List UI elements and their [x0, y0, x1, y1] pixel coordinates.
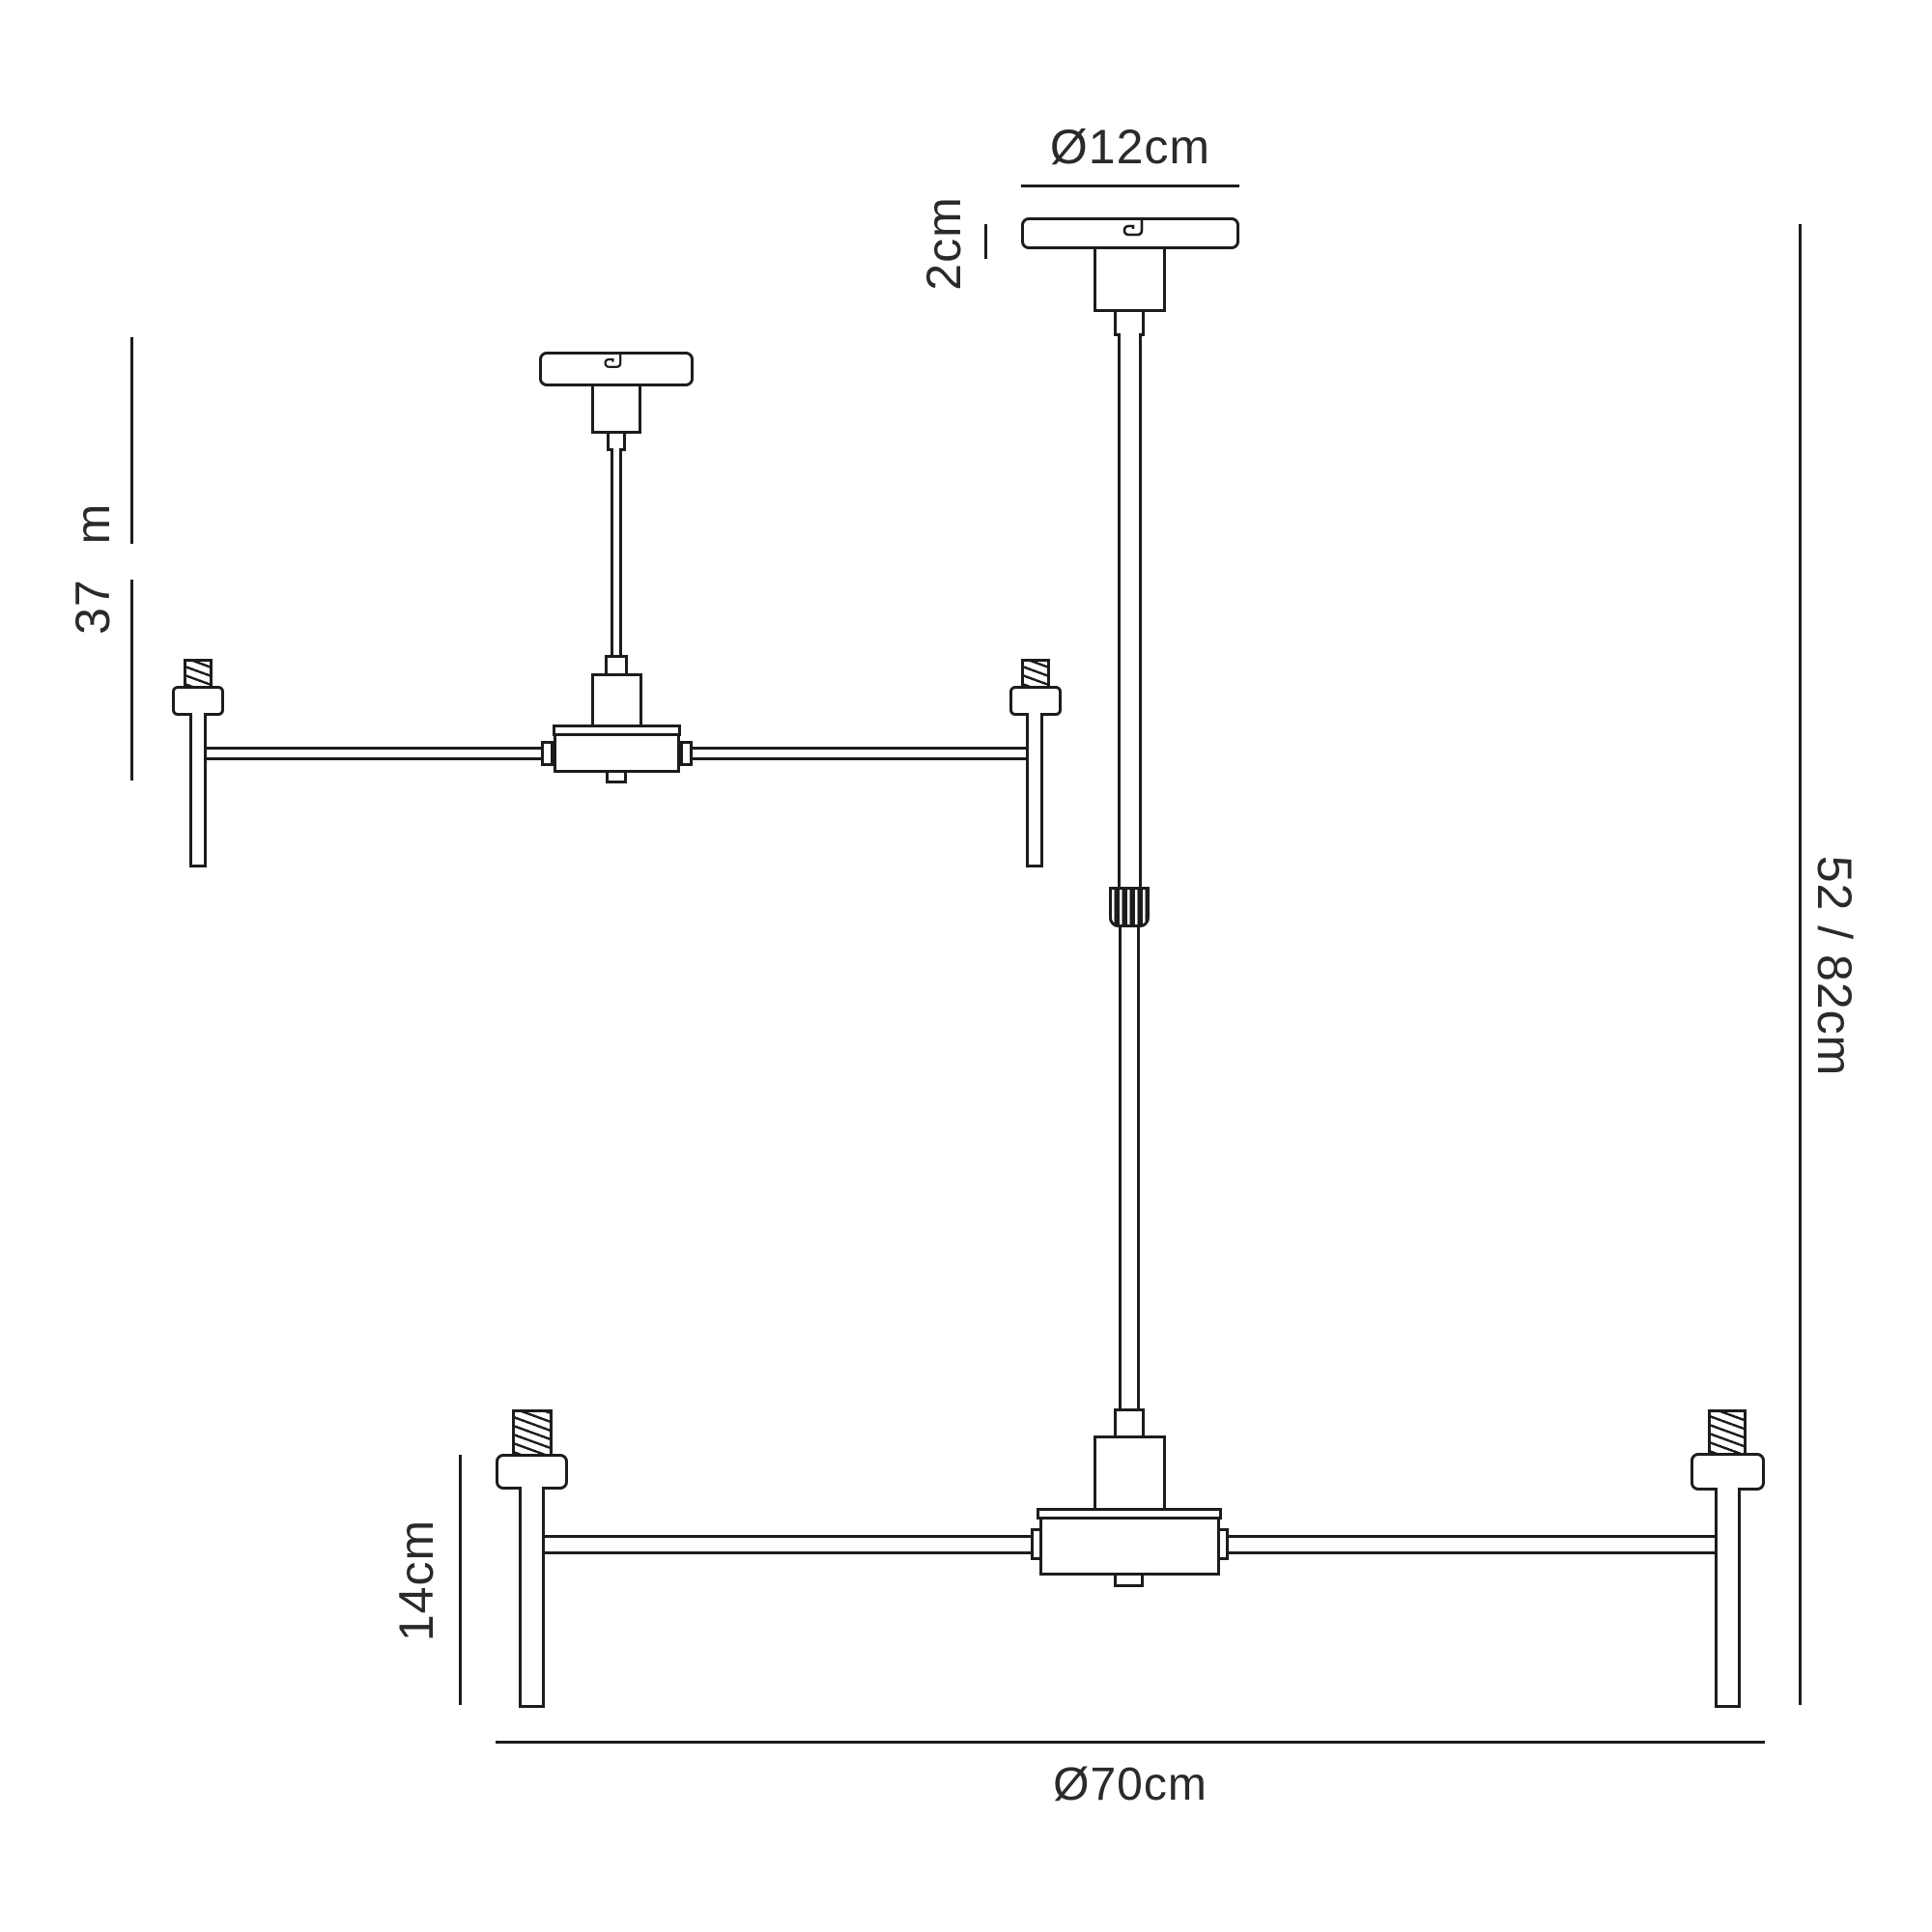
stem-connector — [1114, 309, 1145, 336]
center-hub — [1039, 1517, 1220, 1576]
arm-collar — [541, 741, 554, 766]
dim-line-semi-flush-height — [130, 580, 133, 781]
hub-finial — [606, 770, 627, 783]
canopy-socket — [591, 384, 641, 434]
lamp-holder-thread — [1708, 1409, 1747, 1456]
lamp-holder-thread — [184, 659, 213, 689]
hub-finial — [1114, 1573, 1144, 1587]
dim-label-canopy-height: 2cm — [919, 176, 969, 311]
stem-connector — [1114, 1408, 1145, 1438]
canopy-socket — [1094, 246, 1166, 312]
ceiling-hook-icon — [1122, 219, 1151, 241]
center-hub — [554, 733, 680, 773]
dim-label-pendant-height: 52 / 82cm — [1809, 821, 1860, 1111]
arm-collar — [680, 741, 693, 766]
dim-line-pendant-height — [1799, 224, 1802, 1705]
candle-cup — [1009, 686, 1062, 716]
dim-label-semi-flush-height-unit: m — [68, 495, 118, 553]
dim-line-fixture-diameter — [496, 1741, 1765, 1744]
lamp-holder-thread — [1021, 659, 1050, 689]
stem-rod — [1118, 333, 1142, 890]
candle-sleeve — [1715, 1488, 1741, 1708]
knurled-height-adjuster — [1109, 887, 1150, 927]
dim-line-semi-flush-height — [130, 337, 133, 544]
candle-cup — [172, 686, 224, 716]
arm-bar — [207, 747, 541, 760]
candle-cup — [496, 1454, 568, 1490]
hub-socket — [1094, 1435, 1166, 1511]
arm-bar — [693, 747, 1026, 760]
dimension-diagram: Ø12cm 2cm m 37 52 / 82cm 14cm Ø70cm — [0, 0, 1932, 1932]
dim-label-semi-flush-height-value: 37 — [68, 563, 118, 650]
stem-rod — [1119, 924, 1140, 1411]
arm-bar — [1229, 1535, 1715, 1554]
stem-rod — [611, 448, 622, 658]
dim-line-canopy-diameter — [1021, 185, 1239, 187]
dim-tick-canopy-height — [984, 224, 987, 259]
dim-label-canopy-diameter: Ø12cm — [985, 122, 1275, 172]
candle-sleeve — [519, 1487, 545, 1708]
arm-bar — [545, 1535, 1031, 1554]
dim-label-candle-height: 14cm — [391, 1503, 441, 1658]
candle-sleeve — [189, 713, 207, 867]
lamp-holder-thread — [512, 1409, 553, 1457]
dim-label-fixture-diameter: Ø70cm — [985, 1760, 1275, 1810]
dim-line-candle-height — [459, 1455, 462, 1705]
hub-socket — [591, 673, 642, 727]
candle-sleeve — [1026, 713, 1043, 867]
ceiling-hook-icon — [603, 354, 628, 372]
candle-cup — [1690, 1453, 1765, 1491]
